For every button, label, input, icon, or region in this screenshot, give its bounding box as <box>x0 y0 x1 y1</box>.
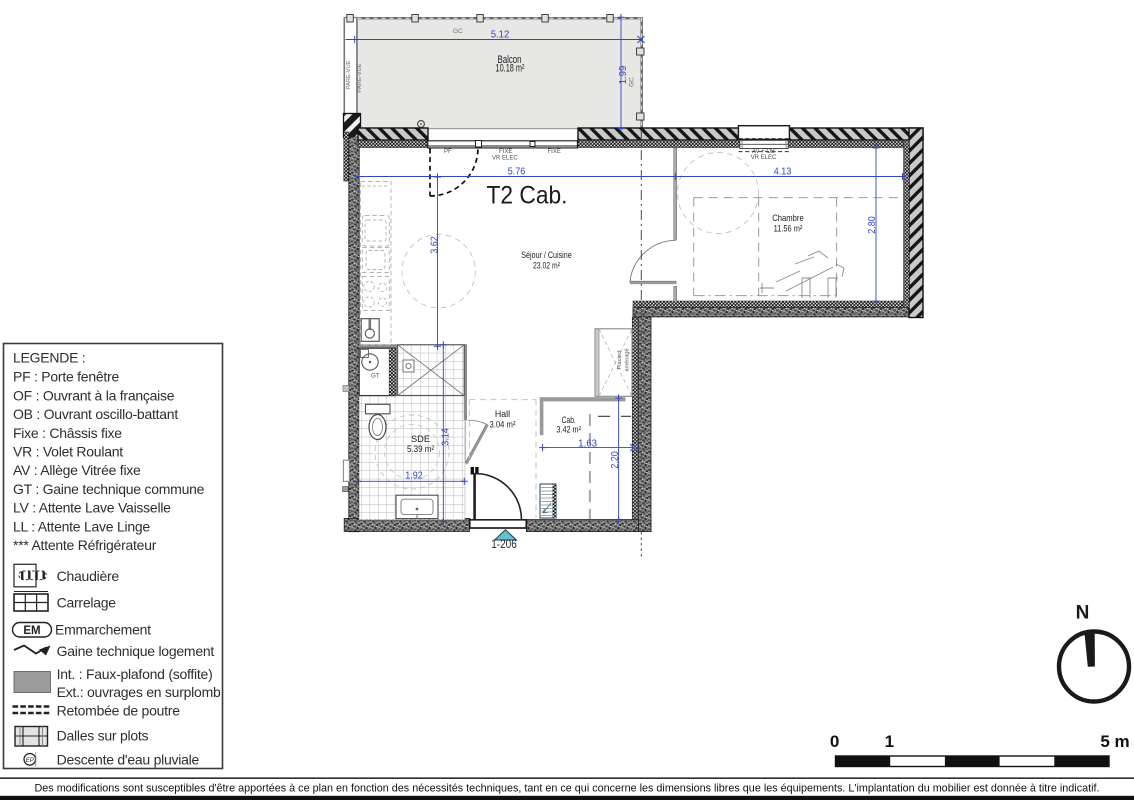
svg-text:5 m: 5 m <box>1100 732 1129 751</box>
svg-text:FIXE: FIXE <box>548 149 561 155</box>
svg-text:5.76: 5.76 <box>508 166 526 178</box>
svg-text:Fixe : Châssis fixe: Fixe : Châssis fixe <box>13 425 122 441</box>
svg-text:0: 0 <box>830 732 839 751</box>
svg-text:Descente d'eau pluviale: Descente d'eau pluviale <box>57 752 200 768</box>
svg-text:aménagé: aménagé <box>625 348 631 371</box>
svg-text:OF : Ouvrant à la française: OF : Ouvrant à la française <box>13 387 175 403</box>
svg-text:3.62: 3.62 <box>428 236 440 254</box>
svg-text:GT : Gaine technique commune: GT : Gaine technique commune <box>13 481 205 497</box>
svg-text:1.92: 1.92 <box>405 469 423 481</box>
svg-text:3.42 m²: 3.42 m² <box>556 425 581 436</box>
svg-text:OB : Ouvrant oscillo-battant: OB : Ouvrant oscillo-battant <box>13 406 178 422</box>
svg-text:Carrelage: Carrelage <box>57 594 117 610</box>
svg-text:N: N <box>1076 603 1090 624</box>
svg-text:Gaine technique logement: Gaine technique logement <box>57 643 215 659</box>
svg-text:Ext.: ouvrages en surplomb: Ext.: ouvrages en surplomb <box>57 684 221 700</box>
svg-text:2.80: 2.80 <box>866 216 878 234</box>
svg-text:5.39 m²: 5.39 m² <box>407 444 435 455</box>
svg-text:PARE-VUE: PARE-VUE <box>346 60 352 89</box>
svg-text:VR : Volet Roulant: VR : Volet Roulant <box>13 444 123 460</box>
svg-text:Dalles sur plots: Dalles sur plots <box>57 728 149 744</box>
svg-text:3.14: 3.14 <box>439 428 451 446</box>
svg-text:Placard: Placard <box>617 351 623 370</box>
svg-text:23.02 m²: 23.02 m² <box>533 261 561 272</box>
svg-text:Des modifications sont suscept: Des modifications sont susceptibles d'êt… <box>35 783 1100 795</box>
svg-text:Séjour / Cuisine: Séjour / Cuisine <box>521 250 571 261</box>
svg-text:1.99: 1.99 <box>617 66 629 85</box>
svg-text:LL : Attente Lave Linge: LL : Attente Lave Linge <box>13 518 150 534</box>
svg-text:PARE-VUE: PARE-VUE <box>357 63 363 92</box>
svg-text:PF : Porte fenêtre: PF : Porte fenêtre <box>13 369 119 385</box>
svg-text:LEGENDE :: LEGENDE : <box>13 349 85 365</box>
svg-text:Chaudière: Chaudière <box>57 568 120 584</box>
svg-text:Emmarchement: Emmarchement <box>55 621 151 637</box>
svg-text:FIXE: FIXE <box>499 149 512 155</box>
svg-text:EP: EP <box>26 758 34 764</box>
svg-text:1.63: 1.63 <box>578 438 597 450</box>
svg-text:VR ELEC: VR ELEC <box>492 156 518 162</box>
svg-text:PF: PF <box>444 149 452 155</box>
svg-text:5.12: 5.12 <box>491 29 510 41</box>
svg-text:T2 Cab.: T2 Cab. <box>487 181 568 209</box>
svg-text:*** Attente Réfrigérateur: *** Attente Réfrigérateur <box>13 537 157 553</box>
svg-text:AV : Allège Vitrée fixe: AV : Allège Vitrée fixe <box>13 462 141 478</box>
svg-text:GT: GT <box>371 373 380 380</box>
svg-text:GC: GC <box>453 28 463 35</box>
svg-text:VR ELEC: VR ELEC <box>751 155 777 161</box>
svg-text:LV : Attente Lave Vaisselle: LV : Attente Lave Vaisselle <box>13 500 171 516</box>
svg-text:1: 1 <box>885 732 894 751</box>
svg-text:11.56 m²: 11.56 m² <box>774 223 803 234</box>
svg-text:2.20: 2.20 <box>609 451 621 469</box>
svg-text:Retombée de poutre: Retombée de poutre <box>57 703 181 719</box>
svg-text:EM: EM <box>23 625 40 637</box>
svg-text:1-206: 1-206 <box>491 539 517 551</box>
svg-text:10.18 m²: 10.18 m² <box>496 63 525 75</box>
svg-text:4.13: 4.13 <box>774 166 792 178</box>
svg-text:3.04 m²: 3.04 m² <box>490 419 517 430</box>
svg-text:GC: GC <box>629 77 636 87</box>
svg-text:Int. : Faux-plafond (soffite): Int. : Faux-plafond (soffite) <box>57 666 213 682</box>
